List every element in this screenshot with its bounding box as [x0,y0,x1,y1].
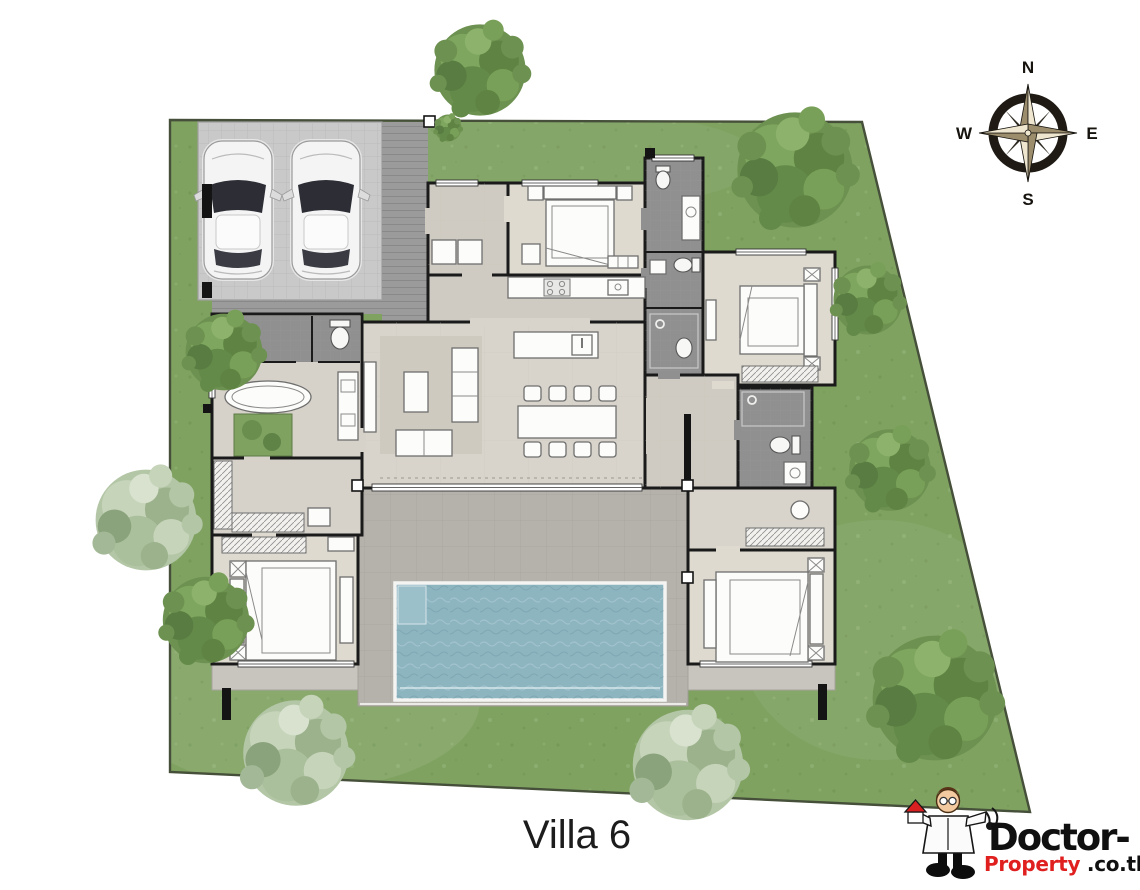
kitchen-island [514,332,598,358]
bed-bottom-right [704,558,824,662]
plan-title: Villa 6 [523,813,631,857]
logo-text-coth: .co.th [1087,852,1140,876]
wardrobe [222,537,306,553]
toilet-master [330,320,350,349]
sofa [452,348,478,422]
logo-text-property: Property [984,852,1080,876]
compass-north-label: N [1022,58,1034,77]
porch-right [688,664,835,690]
floor-plan-page: N E S W Villa 6 [0,0,1140,890]
wardrobe [742,366,818,382]
coffee-table [404,372,428,412]
dining-table [518,406,616,438]
room-corridor-right [645,375,738,488]
floor-plan-canvas: N E S W Villa 6 [0,0,1140,890]
inner-courtyard [234,414,292,456]
compass-east-label: E [1086,124,1097,143]
compass-south-label: S [1022,190,1033,209]
swimming-pool [395,583,665,700]
carport [194,122,382,300]
tv-console [364,362,376,432]
svg-text:Property .co.th: Property .co.th [984,852,1140,876]
bench [704,580,716,648]
porch-left [212,664,358,690]
bench [340,577,353,643]
kitchen-counter [508,277,645,298]
pool-steps [398,586,426,624]
car-right [282,139,370,281]
compass-rose: N E S W [956,58,1098,209]
compass-west-label: W [956,124,973,143]
living-set [364,336,482,456]
wardrobe [746,528,824,546]
kitchen-sink [608,280,628,295]
round-table [791,501,809,519]
tree [430,20,532,118]
